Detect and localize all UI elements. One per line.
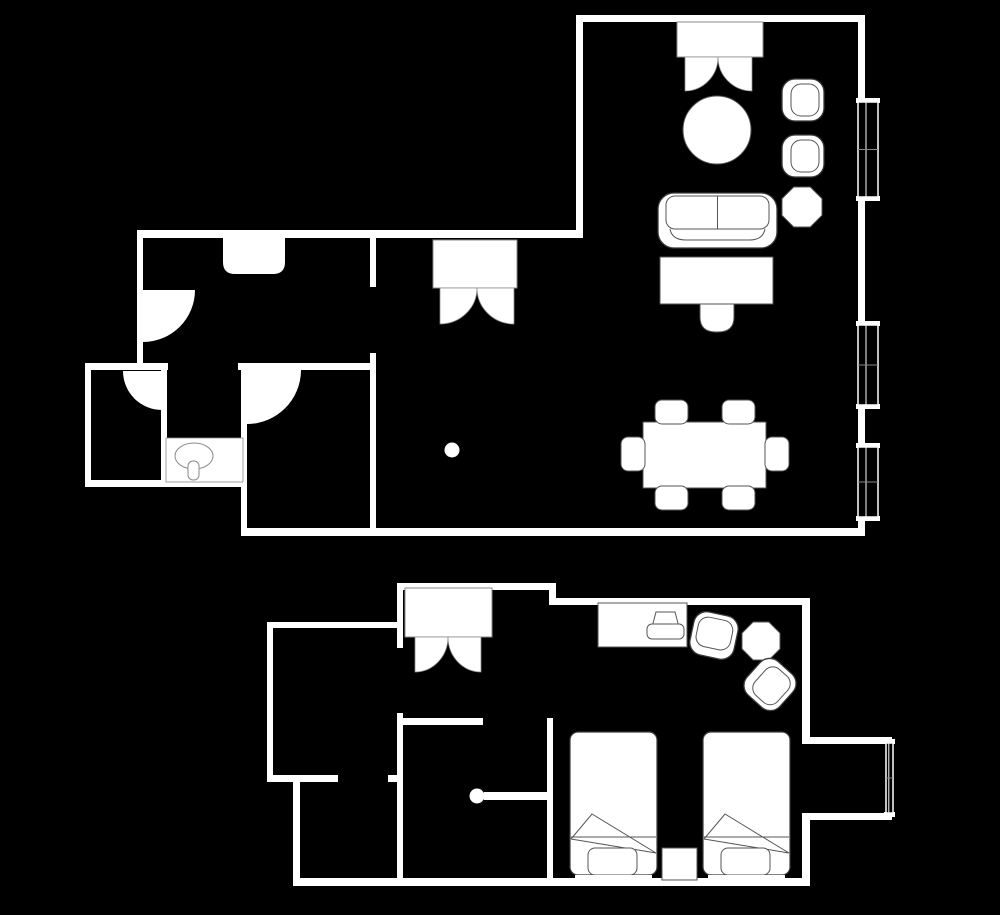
- door-swing-bedroom-entry: [143, 290, 195, 342]
- door-leaf-right: [718, 57, 752, 91]
- door-leaf-left: [440, 288, 477, 324]
- door-leaf-right: [477, 288, 514, 324]
- wall-segment: [397, 718, 483, 725]
- wall-segment: [370, 353, 376, 528]
- door-swing-wc: [123, 371, 162, 410]
- door-leaf-left: [685, 57, 718, 91]
- wall-segment: [241, 528, 865, 536]
- door-threshold: [433, 240, 517, 288]
- console-desk: [660, 257, 773, 304]
- pillow: [588, 848, 637, 875]
- armchair-outline: [687, 609, 740, 661]
- bay-window: [884, 739, 895, 817]
- wall-segment: [397, 713, 403, 882]
- pillow: [721, 848, 770, 875]
- bed-base: [708, 875, 785, 881]
- wardrobe: [223, 238, 285, 274]
- dining-table: [643, 422, 766, 488]
- armchair-outline: [782, 135, 824, 177]
- wall-segment: [802, 820, 810, 882]
- door-leaf-left: [415, 637, 448, 672]
- double-door-foyer: [405, 588, 492, 672]
- dining-chair-1: [655, 400, 688, 424]
- chair-seat: [647, 624, 684, 639]
- armchair-1: [687, 609, 740, 661]
- door-leaf-right: [448, 637, 481, 672]
- wall-segment: [388, 775, 397, 782]
- bed-base: [575, 875, 652, 881]
- wall-segment: [85, 363, 168, 370]
- side-table-octagon: [782, 187, 822, 227]
- door-knob: [470, 789, 485, 804]
- wall-segment: [802, 813, 892, 820]
- wall-segment: [267, 622, 273, 782]
- armchair-2: [739, 653, 802, 716]
- window-2: [856, 321, 880, 409]
- wall-segment: [293, 782, 300, 878]
- wall-segment: [267, 622, 403, 628]
- wall-segment: [802, 598, 810, 737]
- armchair-2: [782, 135, 824, 177]
- dining-chair-2: [722, 400, 755, 424]
- upper-floor-plan: [85, 15, 880, 536]
- wall-segment: [576, 15, 583, 238]
- armchair-1: [782, 79, 824, 121]
- wall-segment: [267, 775, 338, 782]
- wall-segment: [137, 230, 583, 238]
- lower-floor-plan: [267, 583, 895, 886]
- door-threshold: [677, 22, 763, 57]
- wall-segment: [370, 237, 376, 287]
- wall-segment: [576, 15, 865, 22]
- floor-plan-svg: [0, 0, 1000, 915]
- wall-segment: [858, 15, 865, 102]
- dining-chair-6: [765, 437, 789, 471]
- window-1: [856, 98, 880, 201]
- round-table: [683, 96, 751, 164]
- wall-segment: [137, 230, 143, 370]
- wall-segment: [397, 583, 403, 648]
- armchair-outline: [739, 653, 802, 716]
- wall-segment: [802, 737, 892, 744]
- nightstand: [662, 848, 697, 880]
- desk-chair: [700, 304, 734, 332]
- column-dot: [445, 443, 460, 458]
- door-leaf: [484, 792, 549, 800]
- sofa: [658, 193, 777, 248]
- floor-plan-canvas: [0, 0, 1000, 915]
- dining-chair-5: [621, 437, 645, 471]
- window-3: [856, 443, 880, 521]
- sink-vanity: [166, 438, 243, 482]
- side-table-octagon: [742, 622, 780, 660]
- bed-2: [703, 732, 790, 881]
- double-door-hall: [433, 240, 517, 324]
- dining-chair-3: [655, 486, 688, 510]
- wall-segment: [238, 363, 372, 370]
- door-swing-bathroom: [247, 370, 301, 424]
- wall-segment: [858, 197, 865, 325]
- door-threshold: [405, 588, 492, 637]
- wall-segment: [858, 405, 865, 447]
- double-door-living-entry: [677, 22, 763, 91]
- bed-1: [570, 732, 657, 881]
- sink-faucet: [188, 461, 199, 480]
- armchair-outline: [782, 79, 824, 121]
- dining-chair-4: [722, 486, 755, 510]
- wall-segment: [85, 365, 91, 487]
